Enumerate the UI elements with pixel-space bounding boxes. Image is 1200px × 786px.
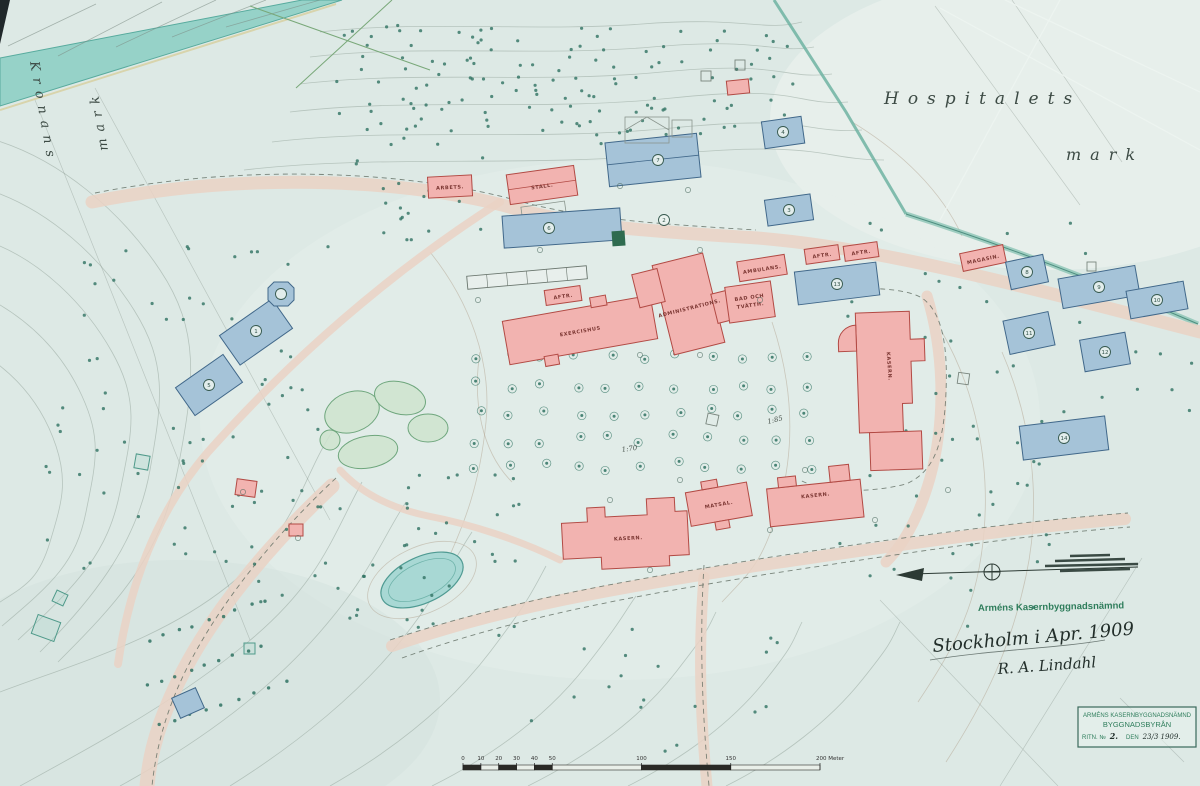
tree-dot: [769, 99, 772, 102]
tree-dot: [588, 94, 591, 97]
tree-dot: [46, 538, 49, 541]
tree-dot: [281, 594, 284, 597]
tree-dot: [609, 27, 612, 30]
tree-dot: [326, 245, 329, 248]
tree-dot: [382, 187, 385, 190]
tree-dot: [335, 80, 338, 83]
tree-dot: [136, 472, 139, 475]
label-hospitalets-mark: mark: [1066, 145, 1144, 164]
tree-dot: [646, 104, 649, 107]
tree-dot: [951, 438, 954, 441]
tree-dot: [300, 489, 303, 492]
building-arbets: ARBETS.: [428, 175, 473, 198]
tree-dot: [447, 101, 450, 104]
tree-dot: [569, 105, 572, 108]
tree-dot: [259, 645, 262, 648]
tree-dot: [208, 618, 211, 621]
tree-dot: [772, 75, 775, 78]
tree-dot: [1101, 396, 1104, 399]
tree-dot: [96, 449, 99, 452]
tree-dot: [382, 231, 385, 234]
tree-dot: [469, 57, 472, 60]
tree-dot: [598, 109, 601, 112]
tree-dot: [264, 378, 267, 381]
tree-dot: [253, 501, 256, 504]
tree-dot: [366, 128, 369, 131]
tree-dot: [151, 302, 154, 305]
tree-dot: [786, 45, 789, 48]
tree-dot: [401, 216, 404, 219]
tree-dot: [1036, 560, 1039, 563]
tree-dot: [445, 521, 448, 524]
tree-dot: [368, 103, 371, 106]
tree-dot: [806, 386, 809, 389]
tree-dot: [351, 30, 354, 33]
tree-dot: [765, 651, 768, 654]
tree-dot: [355, 614, 358, 617]
tree-dot: [385, 25, 388, 28]
tree-dot: [173, 719, 176, 722]
tree-dot: [1016, 482, 1019, 485]
tree-dot: [361, 55, 364, 58]
tree-dot: [765, 705, 768, 708]
tree-dot: [512, 504, 515, 507]
tree-dot: [966, 625, 969, 628]
tree-dot: [915, 494, 918, 497]
tree-dot: [662, 45, 665, 48]
tree-dot: [474, 357, 477, 360]
tree-dot: [560, 121, 563, 124]
scale-segment: [534, 765, 552, 770]
tree-dot: [934, 392, 937, 395]
tree-dot: [573, 695, 576, 698]
tree-dot: [534, 89, 537, 92]
tree-dot: [541, 129, 544, 132]
building-number: 12: [1102, 350, 1109, 356]
tree-dot: [653, 97, 656, 100]
tree-dot: [528, 106, 531, 109]
tree-dot: [289, 355, 292, 358]
stamp-ritn-number: 2.: [1109, 731, 1119, 741]
tree-dot: [410, 44, 413, 47]
stamp-line2: BYGGNADSBYRÅN: [1103, 720, 1171, 729]
tree-dot: [123, 441, 126, 444]
tree-dot: [507, 442, 510, 445]
small-pink-building: [289, 524, 303, 536]
tree-dot: [940, 459, 943, 462]
tree-dot: [202, 302, 205, 305]
site-plan-map: EXERCISHUS ADMINISTRATIONS. KASERN. KASE…: [0, 0, 1200, 786]
tree-dot: [480, 38, 483, 41]
tree-dot: [1159, 352, 1162, 355]
tree-dot: [177, 486, 180, 489]
tree-dot: [712, 355, 715, 358]
tree-dot: [602, 48, 605, 51]
tree-dot: [552, 79, 555, 82]
tree-dot: [422, 195, 425, 198]
tree-dot: [1038, 462, 1041, 465]
tree-dot: [770, 388, 773, 391]
tree-dot: [1190, 362, 1193, 365]
tree-dot: [624, 654, 627, 657]
tree-dot: [742, 384, 745, 387]
tree-dot: [637, 441, 640, 444]
tree-dot: [595, 133, 598, 136]
tree-dot: [768, 57, 771, 60]
tree-dot: [402, 98, 405, 101]
tree-dot: [285, 680, 288, 683]
tree-dot: [183, 526, 186, 529]
tree-dot: [530, 719, 533, 722]
tree-dot: [473, 540, 476, 543]
tree-dot: [112, 279, 115, 282]
tree-dot: [414, 125, 417, 128]
tree-dot: [233, 255, 236, 258]
building-number: 3: [787, 208, 791, 214]
scale-segment: [481, 765, 499, 770]
tree-dot: [631, 628, 634, 631]
tree-dot: [82, 567, 85, 570]
tree-dot: [710, 407, 713, 410]
tree-dot: [531, 63, 534, 66]
tree-dot: [934, 432, 937, 435]
tree-dot: [490, 27, 493, 30]
tree-dot: [404, 67, 407, 70]
tree-dot: [473, 442, 476, 445]
tree-dot: [313, 574, 316, 577]
tree-dot: [418, 474, 421, 477]
tree-dot: [740, 468, 743, 471]
tree-dot: [808, 439, 811, 442]
tree-dot: [568, 56, 571, 59]
tree-dot: [406, 507, 409, 510]
tree-dot: [604, 469, 607, 472]
tree-dot: [48, 471, 51, 474]
tree-dot: [613, 77, 616, 80]
tree-dot: [538, 442, 541, 445]
tree-dot: [579, 435, 582, 438]
tree-dot: [775, 439, 778, 442]
tree-dot: [937, 280, 940, 283]
building-number: 10: [1154, 298, 1161, 304]
tree-dot: [657, 665, 660, 668]
tree-dot: [343, 34, 346, 37]
tree-dot: [996, 370, 999, 373]
tree-dot: [564, 97, 567, 100]
tree-dot: [280, 349, 283, 352]
tree-dot: [396, 24, 399, 27]
tree-dot: [222, 615, 225, 618]
tree-dot: [430, 594, 433, 597]
tree-dot: [989, 490, 992, 493]
tree-dot: [550, 108, 553, 111]
tree-dot: [165, 318, 168, 321]
tree-dot: [83, 261, 86, 264]
tree-dot: [93, 282, 96, 285]
tree-dot: [45, 465, 48, 468]
tree-dot: [949, 339, 952, 342]
tree-dot: [850, 300, 853, 303]
tree-dot: [390, 143, 393, 146]
tree-dot: [289, 386, 292, 389]
tree-dot: [182, 318, 185, 321]
tree-dot: [362, 575, 365, 578]
tree-dot: [1170, 388, 1173, 391]
tree-dot: [324, 562, 327, 565]
tree-dot: [578, 124, 581, 127]
tree-dot: [237, 698, 240, 701]
tree-dot: [1048, 543, 1051, 546]
tree-dot: [545, 462, 548, 465]
tree-dot: [217, 659, 220, 662]
tree-dot: [513, 625, 516, 628]
tree-dot: [102, 407, 105, 410]
tree-dot: [709, 48, 712, 51]
scanned-site-plan: EXERCISHUS ADMINISTRATIONS. KASERN. KASE…: [0, 0, 1200, 786]
tree-dot: [972, 425, 975, 428]
tree-dot: [472, 467, 475, 470]
tree-dot: [398, 29, 401, 32]
tree-dot: [491, 553, 494, 556]
tree-dot: [577, 386, 580, 389]
tree-dot: [578, 465, 581, 468]
tree-dot: [434, 532, 437, 535]
tree-dot: [771, 408, 774, 411]
tree-dot: [645, 50, 648, 53]
label-hospitalets: Hospitalets: [883, 89, 1081, 109]
building-number: 9: [1097, 285, 1101, 291]
tree-dot: [182, 462, 185, 465]
tree-dot: [1078, 321, 1081, 324]
tree-dot: [371, 563, 374, 566]
tree-dot: [496, 513, 499, 516]
tree-dot: [458, 200, 461, 203]
scale-segment: [642, 765, 731, 770]
tree-dot: [769, 637, 772, 640]
tree-dot: [948, 374, 951, 377]
tree-dot: [260, 490, 263, 493]
small-pink-building: [726, 79, 749, 95]
tree-dot: [958, 286, 961, 289]
tree-dot: [247, 649, 250, 652]
tree-dot: [89, 561, 92, 564]
tree-dot: [474, 380, 477, 383]
scale-tick-label: 30: [513, 756, 520, 762]
tree-dot: [233, 608, 236, 611]
tree-dot: [481, 156, 484, 159]
tree-dot: [490, 95, 493, 98]
tree-dot: [802, 412, 805, 415]
tree-dot: [570, 48, 573, 51]
tree-dot: [399, 206, 402, 209]
tree-dot: [771, 356, 774, 359]
tree-dot: [534, 84, 537, 87]
tree-dot: [612, 354, 615, 357]
tree-dot: [96, 357, 99, 360]
tree-dot: [976, 437, 979, 440]
tree-dot: [679, 30, 682, 33]
scale-tick-label: 150: [726, 756, 737, 762]
tree-dot: [951, 552, 954, 555]
tree-dot: [267, 686, 270, 689]
tree-dot: [417, 626, 420, 629]
number-circle: [276, 289, 287, 300]
stamp-ritn-label: RITN. №: [1082, 734, 1106, 741]
tree-dot: [267, 403, 270, 406]
tree-dot: [407, 486, 410, 489]
tree-dot: [161, 633, 164, 636]
building-number: 2: [662, 218, 666, 224]
tree-dot: [580, 414, 583, 417]
building-number: 13: [834, 282, 841, 288]
tree-dot: [579, 45, 582, 48]
tree-dot: [678, 460, 681, 463]
tree-dot: [336, 587, 339, 590]
tree-dot: [893, 568, 896, 571]
tree-dot: [487, 125, 490, 128]
tree-dot: [657, 61, 660, 64]
tree-dot: [1188, 409, 1191, 412]
tree-dot: [190, 625, 193, 628]
stamp-box: ARMÉNS KASERNBYGGNADSNÄMND BYGGNADSBYRÅN…: [1078, 707, 1196, 747]
tree-dot: [716, 39, 719, 42]
tree-dot: [642, 698, 645, 701]
tree-dot: [1006, 232, 1009, 235]
tree-dot: [56, 424, 59, 427]
tree-dot: [634, 76, 637, 79]
tree-dot: [749, 77, 752, 80]
tree-dot: [978, 513, 981, 516]
tree-dot: [448, 584, 451, 587]
tree-dot: [421, 609, 424, 612]
tree-dot: [772, 40, 775, 43]
tree-dot: [776, 641, 779, 644]
tree-dot: [680, 60, 683, 63]
stamp-den-label: DEN: [1126, 735, 1139, 741]
tree-dot: [596, 35, 599, 38]
tree-dot: [443, 62, 446, 65]
building-number: 11: [1026, 331, 1033, 337]
tree-dot: [519, 64, 522, 67]
tree-dot: [969, 589, 972, 592]
tree-dot: [712, 388, 715, 391]
tree-dot: [360, 68, 363, 71]
small-green-structure: [612, 231, 626, 247]
tree-dot: [158, 723, 161, 726]
tree-dot: [370, 110, 373, 113]
tree-dot: [213, 550, 216, 553]
tree-dot: [450, 129, 453, 132]
tree-dot: [102, 491, 105, 494]
tree-dot: [756, 49, 759, 52]
tree-dot: [664, 750, 667, 753]
tree-dot: [672, 388, 675, 391]
tree-dot: [618, 131, 621, 134]
tree-dot: [806, 355, 809, 358]
tree-dot: [643, 413, 646, 416]
building-number: 5: [207, 383, 211, 389]
tree-dot: [338, 112, 341, 115]
tree-dot: [606, 434, 609, 437]
tree-dot: [124, 249, 127, 252]
tree-dot: [472, 62, 475, 65]
tree-dot: [924, 272, 927, 275]
tree-dot: [286, 456, 289, 459]
tree-dot: [285, 528, 288, 531]
tree-dot: [1134, 350, 1137, 353]
tree-dot: [706, 435, 709, 438]
stamp-date: 23/3 1909.: [1142, 733, 1181, 741]
tree-dot: [231, 653, 234, 656]
tree-dot: [735, 68, 738, 71]
tree-dot: [261, 383, 264, 386]
stamp-line1: ARMÉNS KASERNBYGGNADSNÄMND: [1083, 712, 1192, 719]
tree-dot: [160, 680, 163, 683]
tree-dot: [425, 103, 428, 106]
tree-dot: [356, 608, 359, 611]
tree-dot: [286, 263, 289, 266]
tree-dot: [907, 524, 910, 527]
scale-tick-label: 200 Meter: [816, 756, 845, 762]
tree-dot: [677, 126, 680, 129]
tree-dot: [589, 120, 592, 123]
tree-dot: [702, 118, 705, 121]
tree-dot: [423, 576, 426, 579]
tree-dot: [612, 66, 615, 69]
tree-dot: [479, 228, 482, 231]
tree-dot: [592, 95, 595, 98]
tree-dot: [355, 162, 358, 165]
tree-dot: [476, 41, 479, 44]
tree-dot: [366, 44, 369, 47]
tree-dot: [437, 73, 440, 76]
tree-dot: [458, 31, 461, 34]
tree-dot: [146, 683, 149, 686]
tree-dot: [399, 566, 402, 569]
tree-dot: [479, 29, 482, 32]
tree-dot: [281, 394, 284, 397]
tree-dot: [620, 674, 623, 677]
tree-dot: [765, 34, 768, 37]
tree-dot: [250, 545, 253, 548]
tree-dot: [405, 128, 408, 131]
tree-dot: [104, 391, 107, 394]
tree-dot: [575, 122, 578, 125]
tree-dot: [447, 476, 450, 479]
tree-dot: [263, 600, 266, 603]
tree-dot: [485, 119, 488, 122]
tree-dot: [741, 358, 744, 361]
tree-dot: [407, 212, 410, 215]
tree-dot: [880, 228, 883, 231]
tree-dot: [600, 142, 603, 145]
tree-dot: [232, 435, 235, 438]
tree-dot: [431, 60, 434, 63]
tree-dot: [672, 433, 675, 436]
tree-dot: [639, 706, 642, 709]
tree-dot: [869, 222, 872, 225]
tree-dot: [250, 602, 253, 605]
tree-dot: [650, 65, 653, 68]
tree-dot: [230, 317, 233, 320]
tree-dot: [635, 111, 638, 114]
tree-dot: [509, 464, 512, 467]
tree-dot: [497, 634, 500, 637]
tree-dot: [231, 505, 234, 508]
tree-dot: [699, 132, 702, 135]
tree-dot: [639, 465, 642, 468]
tree-dot: [594, 59, 597, 62]
